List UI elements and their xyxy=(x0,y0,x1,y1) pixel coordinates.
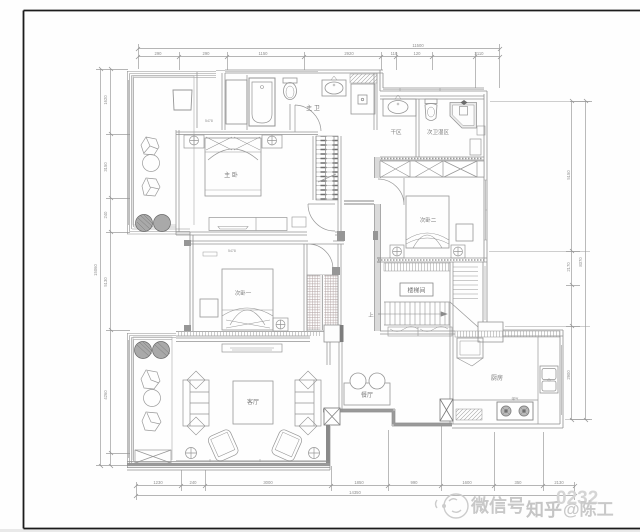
svg-text:8370: 8370 xyxy=(578,257,583,267)
svg-text:5478: 5478 xyxy=(228,249,236,253)
svg-text:240: 240 xyxy=(190,480,198,485)
svg-text:11500: 11500 xyxy=(412,43,424,48)
svg-text:290: 290 xyxy=(203,51,211,56)
svg-text:主 卫: 主 卫 xyxy=(306,104,320,112)
svg-text:2130: 2130 xyxy=(554,480,564,485)
svg-text:煤气: 煤气 xyxy=(512,396,520,401)
svg-text:餐厅: 餐厅 xyxy=(361,391,373,399)
svg-text:5478: 5478 xyxy=(205,119,213,123)
svg-text:240: 240 xyxy=(103,211,108,219)
svg-text:微信号: 微信号 xyxy=(470,495,525,516)
svg-text:1850: 1850 xyxy=(354,480,364,485)
svg-text:3150: 3150 xyxy=(103,162,108,172)
svg-text:1620: 1620 xyxy=(103,95,108,105)
svg-text:@陈工: @陈工 xyxy=(563,499,614,519)
svg-text:2920: 2920 xyxy=(344,51,354,56)
svg-text:楼梯间: 楼梯间 xyxy=(407,287,425,295)
svg-text:2170: 2170 xyxy=(566,262,571,272)
svg-text:5130: 5130 xyxy=(103,277,108,287)
svg-text:110: 110 xyxy=(391,51,398,56)
svg-text:4260: 4260 xyxy=(103,390,108,400)
svg-text:14350: 14350 xyxy=(349,490,361,495)
svg-text:1230: 1230 xyxy=(153,480,163,485)
svg-text:3000: 3000 xyxy=(263,480,273,485)
svg-text:350: 350 xyxy=(515,480,523,485)
svg-text:5150: 5150 xyxy=(566,170,571,180)
svg-text:1150: 1150 xyxy=(258,51,268,56)
svg-text:客厅: 客厅 xyxy=(247,398,259,406)
svg-text:2900: 2900 xyxy=(566,370,571,380)
svg-text:1600: 1600 xyxy=(462,480,472,485)
svg-text:290: 290 xyxy=(155,51,163,56)
svg-text:次卧一: 次卧一 xyxy=(235,289,252,297)
svg-text:上: 上 xyxy=(368,311,374,319)
svg-text:次卧二: 次卧二 xyxy=(420,216,437,224)
svg-text:次卫湿区: 次卫湿区 xyxy=(427,128,450,136)
svg-text:120: 120 xyxy=(414,51,422,56)
svg-text:3110: 3110 xyxy=(474,51,484,56)
svg-text:厨房: 厨房 xyxy=(491,374,503,382)
svg-text:主 卧: 主 卧 xyxy=(224,171,238,179)
svg-text:干区: 干区 xyxy=(390,129,402,136)
svg-text:15060: 15060 xyxy=(93,264,98,276)
svg-text:990: 990 xyxy=(411,480,419,485)
